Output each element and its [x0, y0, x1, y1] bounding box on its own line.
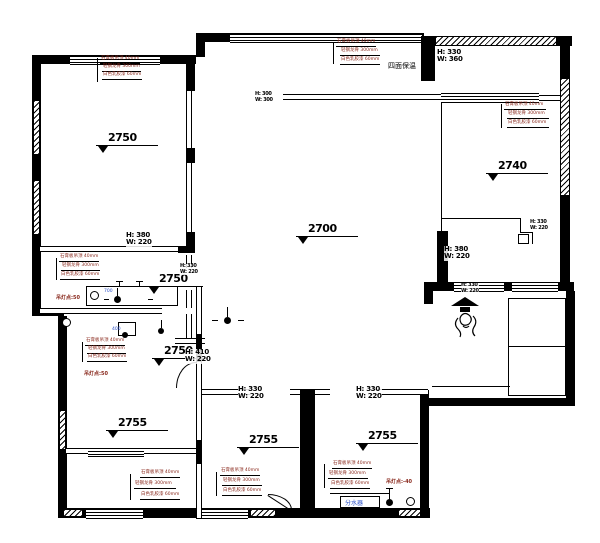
counter-line: [520, 218, 521, 232]
callout-leader: [56, 258, 57, 280]
blue-dimension: 400: [112, 327, 121, 332]
level-marker: 2755: [237, 433, 307, 457]
callout-leader: [82, 342, 83, 362]
level-value: 2750: [108, 131, 137, 144]
lamp-point-label: 吊灯点:50: [84, 370, 108, 377]
wall: [186, 55, 195, 91]
lamp-stem: [389, 488, 390, 499]
lamp-stem: [117, 288, 118, 296]
wall: [186, 163, 192, 232]
wall-hatch: [250, 509, 276, 517]
fixture-circle: [90, 291, 99, 300]
callout-line: 轻钢龙骨 300mm: [507, 111, 549, 119]
level-triangle-icon: [98, 146, 108, 153]
wall-hatch: [560, 78, 570, 196]
counter-box: [518, 234, 529, 244]
callout-line: 石膏板吊顶 40mm: [336, 39, 376, 47]
callout-leader: [501, 104, 502, 128]
lamp-point-label: 吊灯点:50: [56, 294, 80, 301]
wall: [186, 314, 192, 340]
wall: [290, 389, 300, 395]
beam-label: H: 330 W: 220: [180, 264, 198, 275]
wall: [560, 196, 570, 288]
level-triangle-icon: [239, 448, 249, 455]
tick: [104, 299, 109, 300]
ceiling-beam-line: [283, 94, 441, 100]
callout-line: 轻钢龙骨 300mm: [340, 48, 380, 56]
wall: [424, 282, 433, 304]
callout-leader: [130, 474, 131, 500]
callout-line: 石膏板吊顶 40mm: [85, 338, 125, 346]
callout-line: 轻钢龙骨 300mm: [102, 64, 141, 72]
callout-line: 轻钢龙骨 300mm: [61, 263, 100, 271]
callout-line: 白色乳胶漆 60mm: [140, 492, 180, 500]
beam-label: H: 330 W: 220: [530, 220, 548, 231]
callout-line: 石膏板吊顶 40mm: [140, 470, 180, 478]
wall-hatch: [33, 180, 40, 235]
callout-line: 白色乳胶漆 60mm: [330, 481, 370, 489]
level-marker: 2755: [356, 429, 426, 453]
blue-dimension: 700: [104, 289, 113, 294]
tap-icon: [136, 281, 143, 282]
cabinet-divider: [508, 346, 566, 347]
wall: [558, 282, 574, 291]
callout-leader: [333, 42, 334, 64]
level-triangle-icon: [154, 359, 164, 366]
callout-leader: [97, 58, 98, 82]
cabinet-grid: [508, 298, 566, 396]
counter-line: [441, 218, 521, 219]
lamp-point-icon: [158, 328, 164, 334]
callout-line: 轻钢龙骨 300mm: [328, 471, 368, 479]
callout-line: 白色乳胶漆 60mm: [340, 57, 380, 65]
callout-line: 白色乳胶漆 60mm: [222, 488, 262, 496]
tick: [148, 299, 153, 300]
beam-label: H: 330 W: 220: [356, 386, 382, 401]
level-marker: 2740: [486, 159, 556, 183]
level-triangle-icon: [149, 287, 159, 294]
tick: [238, 320, 244, 321]
level-value: 2755: [368, 429, 397, 442]
wall: [186, 148, 195, 163]
callout-leader: [216, 472, 217, 496]
counter-line: [532, 232, 533, 244]
exhaust-figure-icon: [448, 294, 482, 338]
lamp-point-icon: [114, 296, 121, 303]
window: [512, 282, 558, 292]
callout-line: 石膏板吊顶 40mm: [504, 102, 546, 110]
lamp-point-label: 吊灯点:-40: [386, 478, 412, 485]
wall-column: [421, 36, 435, 81]
wall: [178, 246, 195, 253]
window: [230, 34, 422, 43]
level-triangle-icon: [488, 174, 498, 181]
callout-line: 石膏板吊顶 40mm: [220, 468, 260, 476]
callout-line: 石膏板吊顶 40mm: [332, 461, 372, 469]
callout-line: 白色乳胶漆 60mm: [87, 354, 127, 362]
lamp-stem: [227, 307, 228, 317]
tick: [386, 488, 393, 489]
tick: [212, 320, 218, 321]
beam-label: H: 330 W: 220: [461, 283, 479, 294]
wall: [315, 389, 330, 395]
callout-line: 轻钢龙骨 300mm: [87, 346, 126, 354]
beam-label: H: 410 W: 220: [185, 349, 211, 364]
wall: [40, 246, 178, 252]
wall: [539, 95, 560, 101]
callout-line: 石膏板吊顶 40mm: [100, 56, 140, 64]
level-triangle-icon: [108, 431, 118, 438]
beam-label: H: 380 W: 220: [444, 246, 470, 261]
level-value: 2700: [308, 222, 337, 235]
wall-hatch: [33, 100, 40, 155]
wall: [560, 44, 570, 78]
level-triangle-icon: [298, 237, 308, 244]
wall: [566, 291, 575, 398]
level-marker: 2755: [106, 416, 176, 440]
level-marker: 2750: [96, 131, 166, 155]
callout-line: 轻钢龙骨 300mm: [134, 481, 176, 489]
beam-label: H: 330 W: 220: [238, 386, 264, 401]
callout-line: 轻钢龙骨 300mm: [222, 478, 262, 486]
wall: [420, 390, 429, 518]
insulation-note: 四面保温: [388, 61, 416, 71]
beam-label: H: 330 W: 360: [437, 49, 463, 64]
manifold-line: [330, 493, 390, 494]
beam-label: H: 380 W: 220: [126, 232, 152, 247]
wall-hatch: [63, 509, 83, 517]
ceiling-plan-canvas: 分水器 2750 2700 2740 2750 2750 2755 2755 2…: [0, 0, 600, 543]
fixture-circle: [406, 497, 415, 506]
wall-line: [441, 102, 442, 231]
level-value: 2740: [498, 159, 527, 172]
window: [86, 509, 143, 519]
level-triangle-icon: [358, 444, 368, 451]
wall: [428, 398, 575, 406]
callout-leader: [324, 464, 325, 488]
callout-line: 白色乳胶漆 60mm: [102, 72, 142, 80]
level-marker: 2750: [147, 272, 217, 296]
wall: [504, 282, 512, 291]
wall: [186, 91, 192, 148]
fixture-circle: [62, 318, 71, 327]
level-marker: 2700: [296, 222, 366, 246]
lamp-point-icon: [224, 317, 231, 324]
manifold-label: 分水器: [345, 498, 363, 507]
callout-line: 白色乳胶漆 60mm: [60, 272, 100, 280]
manifold-box: 分水器: [340, 496, 380, 508]
counter-line: [432, 386, 510, 387]
window: [88, 448, 144, 457]
wall: [196, 440, 202, 464]
beam-label: H: 300 W: 300: [255, 92, 273, 103]
level-value: 2755: [249, 433, 278, 446]
lamp-point-icon: [386, 499, 393, 506]
wall-hatch: [435, 36, 559, 46]
wall-hatch: [59, 410, 66, 450]
lamp-stem: [161, 320, 162, 328]
wall: [40, 308, 162, 314]
callout-line: 石膏板吊顶 40mm: [59, 254, 99, 262]
callout-line: 白色乳胶漆 60mm: [507, 120, 549, 128]
tap-icon: [116, 281, 123, 282]
level-value: 2755: [118, 416, 147, 429]
window: [196, 509, 248, 519]
